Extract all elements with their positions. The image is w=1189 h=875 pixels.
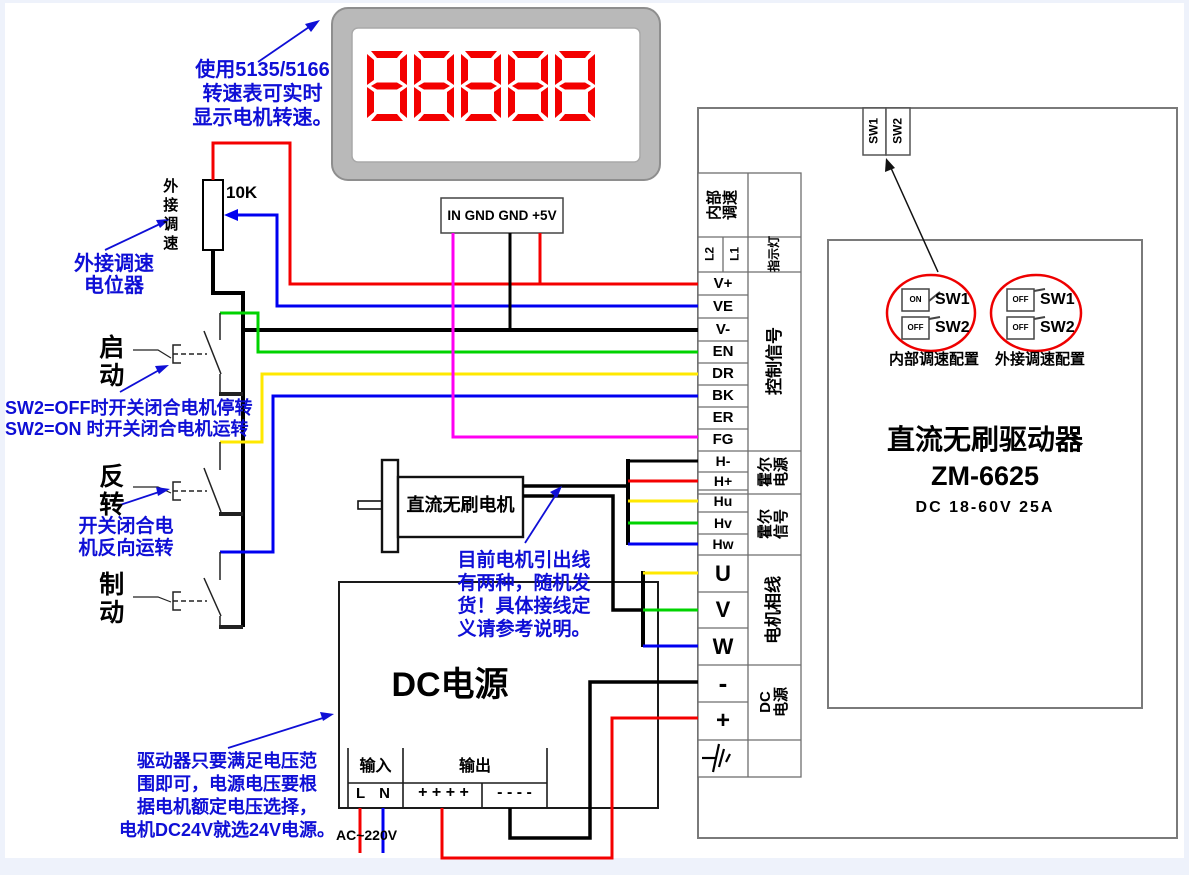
pot-note: 外接调速 电位器 [58, 253, 170, 297]
power-input-terminals: L N [348, 785, 403, 802]
switch-start-label: 启动 [95, 331, 124, 393]
group-hall-signal: 霍尔 信号 [758, 502, 790, 546]
group-dc-power: DC 电源 [758, 672, 790, 732]
config-internal-sw2-label: SW2 [935, 319, 970, 337]
terminal-vplus: V+ [698, 272, 748, 295]
terminal-er: ER [698, 407, 748, 429]
tach-connector-label: IN GND GND +5V [441, 198, 563, 233]
terminal-u: U [698, 555, 748, 592]
motor-label: 直流无刷电机 [398, 495, 523, 516]
group-internal-speed: 内部 调速 [707, 173, 739, 237]
dip-top-sw2-label: SW2 [892, 107, 906, 154]
dip-state-external-sw1: OFF [1007, 289, 1034, 311]
wiring-diagram-page: 使用5135/5166 转速表可实时 显示电机转速。 外接调速 电位器 SW2=… [0, 0, 1189, 875]
dip-top-sw1-label: SW1 [868, 107, 882, 154]
driver-spec: DC 18-60V 25A [860, 499, 1110, 517]
config-internal-sw1-label: SW1 [935, 291, 970, 309]
switch-reverse-symbol [133, 442, 243, 514]
terminal-bk: BK [698, 385, 748, 407]
power-input-label: 输入 [348, 758, 403, 776]
sw2-note: SW2=OFF时开关闭合电机停转 SW2=ON 时开关闭合电机运转 [5, 398, 265, 440]
power-output-label: 输出 [403, 758, 547, 776]
terminal-v: V [698, 592, 748, 628]
terminal-vminus: V- [698, 318, 748, 341]
power-output-plus: + + + + [405, 784, 482, 802]
dip-switch-arrow [885, 158, 938, 272]
power-ac-label: AC~220V [336, 827, 397, 843]
terminal-hw: Hw [698, 534, 748, 555]
switch-brake-symbol [133, 552, 243, 627]
driver-title: 直流无刷驱动器 [860, 424, 1110, 456]
config-internal-label: 内部调速配置 [884, 351, 984, 368]
terminal-ve: VE [698, 295, 748, 318]
display-note: 使用5135/5166 转速表可实时 显示电机转速。 [190, 58, 335, 130]
terminal-hplus: H+ [698, 472, 748, 490]
switch-brake-label: 制动 [95, 568, 124, 630]
driver-model: ZM-6625 [860, 461, 1110, 492]
terminal-fg: FG [698, 429, 748, 451]
terminal-plus: + [698, 702, 748, 740]
potentiometer-body [203, 180, 223, 250]
power-note: 驱动器只要满足电压范 围即可，电源电压要根 据电机额定电压选择， 电机DC24V… [118, 750, 336, 842]
terminal-minus: - [698, 665, 748, 702]
terminal-dr: DR [698, 363, 748, 385]
terminal-hv: Hv [698, 512, 748, 534]
group-hall-power: 霍尔 电源 [758, 450, 790, 494]
pot-value: 10K [226, 183, 257, 203]
terminal-en: EN [698, 341, 748, 363]
group-l2: L2 [704, 236, 718, 271]
motor-note: 目前电机引出线 有两种，随机发 货！具体接线定 义请参考说明。 [448, 549, 600, 641]
terminal-w: W [698, 628, 748, 665]
terminal-hminus: H- [698, 450, 748, 472]
dip-state-external-sw2: OFF [1007, 317, 1034, 339]
power-title: DC电源 [350, 666, 550, 705]
group-motor-phase: 电机相线 [765, 565, 783, 655]
dip-state-internal-sw2: OFF [902, 317, 929, 339]
config-external-label: 外接调速配置 [990, 351, 1090, 368]
dip-state-internal-sw1: ON [902, 289, 929, 311]
tachometer-display [332, 8, 660, 180]
group-control-signal: 控制信号 [766, 311, 784, 411]
terminal-hu: Hu [698, 490, 748, 512]
group-indicator: 指示灯 [768, 236, 782, 272]
pot-vertical-label: 外接调速 [161, 170, 178, 262]
power-output-minus: - - - - [482, 784, 547, 802]
switch-start-symbol [133, 313, 243, 394]
config-external-sw2-label: SW2 [1040, 319, 1075, 337]
config-external-sw1-label: SW1 [1040, 291, 1075, 309]
reverse-note: 开关闭合电 机反向运转 [66, 516, 186, 560]
group-l1: L1 [729, 236, 743, 271]
switch-reverse-label: 反转 [95, 460, 124, 522]
